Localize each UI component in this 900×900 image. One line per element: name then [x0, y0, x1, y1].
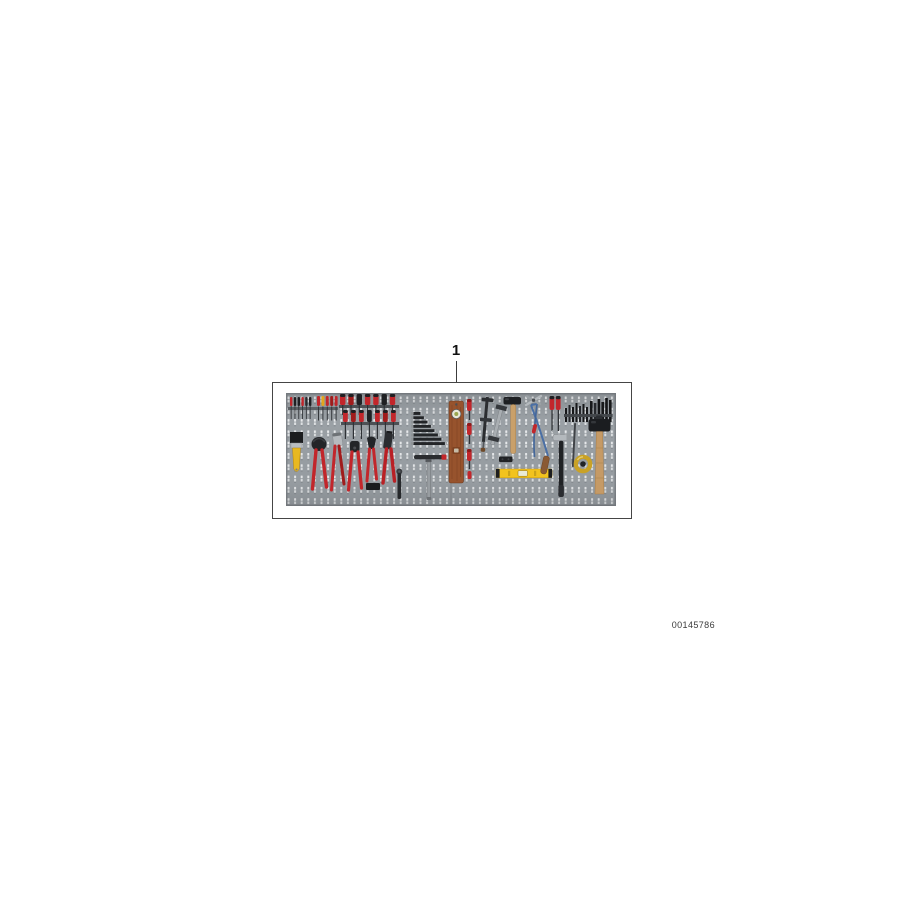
tool-board-illustration [286, 393, 616, 506]
part-frame [272, 382, 632, 519]
wooden-spirit-level-icon [449, 401, 464, 483]
storage-block-icon [366, 483, 380, 490]
callout-leader-line [456, 361, 457, 382]
document-number: 00145786 [640, 620, 715, 630]
connector-block-icon [499, 457, 513, 463]
callout-label: 1 [449, 343, 463, 360]
